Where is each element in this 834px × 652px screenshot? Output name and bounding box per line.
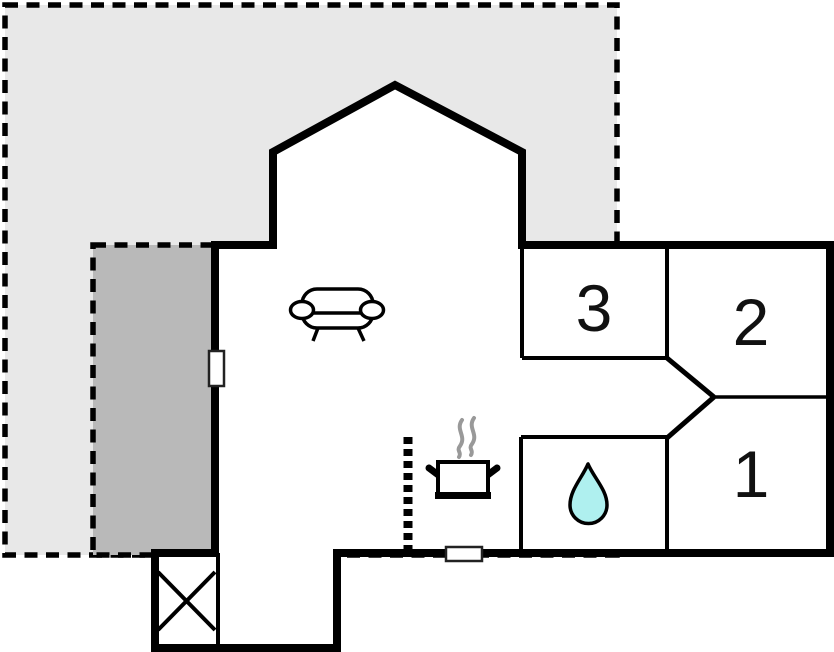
terrace-dark-area (93, 245, 215, 555)
bottom-wall-window (446, 547, 482, 561)
bedroom-2-label: 2 (733, 285, 770, 359)
left-wall-window (209, 351, 224, 386)
pot-body (438, 462, 488, 494)
sofa-arm-left (291, 302, 314, 319)
floorplan-canvas: 3 2 1 (0, 0, 834, 652)
bedroom-1-label: 1 (733, 437, 770, 511)
bedroom-3-label: 3 (576, 271, 613, 345)
sofa-arm-right (361, 302, 384, 319)
floorplan: 3 2 1 (0, 0, 834, 652)
